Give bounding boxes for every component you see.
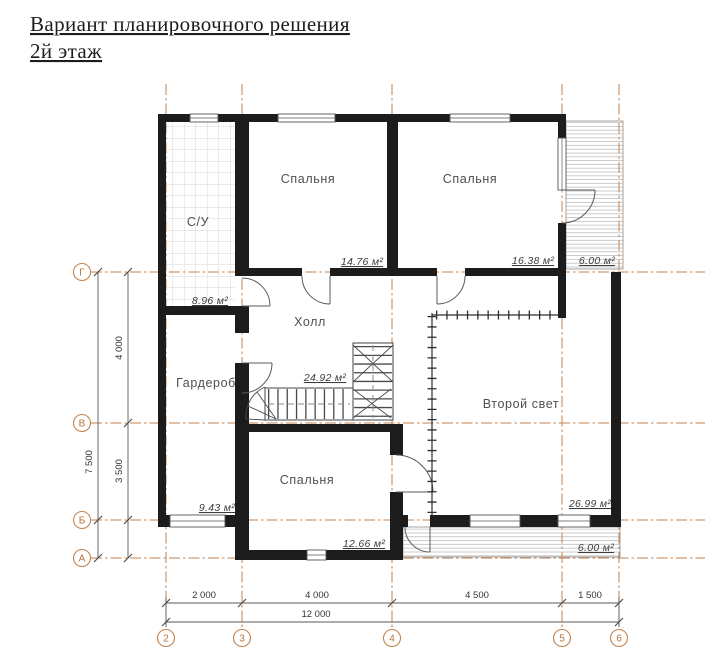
- window: [558, 138, 566, 190]
- door-bedroom-top-right: [437, 276, 465, 304]
- dim-bottom-2000: 2 000: [192, 590, 216, 601]
- window: [307, 550, 326, 560]
- area-label-balcony-top: 6.00 м²: [579, 255, 615, 267]
- dim-left-3500: 3 500: [114, 459, 125, 483]
- dim-bottom-12000: 12 000: [301, 609, 330, 620]
- axis-label-a: А: [79, 554, 86, 565]
- room-label-second-light: Второй свет: [483, 397, 559, 411]
- area-label-wardrobe: 9.43 м²: [199, 502, 235, 514]
- window: [190, 114, 218, 122]
- window: [558, 515, 590, 527]
- area-label-bedroom-bottom: 12.66 м²: [343, 538, 385, 550]
- dim-bottom-4000: 4 000: [305, 590, 329, 601]
- window: [450, 114, 510, 122]
- axis-label-4: 4: [389, 634, 395, 645]
- axis-bubble-2: 2: [158, 630, 175, 647]
- doors: [242, 190, 595, 552]
- axis-bubble-4: 4: [384, 630, 401, 647]
- axis-label-b: Б: [79, 516, 86, 527]
- page-title: Вариант планировочного решения: [30, 12, 350, 36]
- axis-bubble-v: В: [74, 415, 91, 432]
- room-bedroom-top-right: Спальня 16.38 м²: [443, 172, 555, 267]
- axis-label-v: В: [79, 419, 86, 430]
- dimensions-left: 4 000 3 500 7 500: [84, 268, 132, 562]
- area-label-bedroom-top-left: 14.76 м²: [341, 256, 383, 268]
- page-subtitle: 2й этаж: [30, 39, 102, 63]
- drawing-sheet: Вариант планировочного решения 2й этаж: [0, 0, 719, 669]
- axis-bubble-g: Г: [74, 264, 91, 281]
- room-wardrobe: Гардероб 9.43 м²: [176, 376, 236, 514]
- area-label-hall: 24.92 м²: [303, 372, 346, 384]
- floor-plan-canvas: Вариант планировочного решения 2й этаж: [0, 0, 719, 669]
- dim-bottom-4500: 4 500: [465, 590, 489, 601]
- door-bedroom-bottom: [396, 455, 433, 492]
- axis-bubble-6: 6: [611, 630, 628, 647]
- axis-label-2: 2: [163, 634, 169, 645]
- dim-left-7500: 7 500: [84, 450, 95, 474]
- room-label-wardrobe: Гардероб: [176, 376, 236, 390]
- area-label-second-light: 26.99 м²: [568, 498, 611, 510]
- door-su: [242, 278, 270, 306]
- axis-bubble-3: 3: [234, 630, 251, 647]
- room-bedroom-top-left: Спальня 14.76 м²: [281, 172, 384, 268]
- area-label-balcony-bottom: 6.00 м²: [578, 542, 614, 554]
- su-tile-floor: [166, 122, 235, 306]
- room-label-su: С/У: [187, 215, 209, 229]
- axis-label-g: Г: [79, 268, 85, 279]
- area-label-bedroom-top-right: 16.38 м²: [512, 255, 554, 267]
- room-label-bedroom-top-right: Спальня: [443, 172, 497, 186]
- axis-label-6: 6: [616, 634, 622, 645]
- axis-bubble-a: А: [74, 550, 91, 567]
- second-light-railing: [432, 313, 558, 515]
- room-hall: Холл 24.92 м²: [294, 315, 346, 384]
- axis-bubble-b: Б: [74, 512, 91, 529]
- room-label-hall: Холл: [294, 315, 326, 329]
- area-label-su: 8.96 м²: [192, 295, 228, 307]
- room-label-bedroom-top-left: Спальня: [281, 172, 335, 186]
- window: [470, 515, 520, 527]
- room-second-light: Второй свет 26.99 м²: [483, 397, 612, 510]
- window: [278, 114, 335, 122]
- axis-bubble-5: 5: [554, 630, 571, 647]
- title-block: Вариант планировочного решения 2й этаж: [30, 12, 350, 63]
- room-bedroom-bottom: Спальня 12.66 м²: [280, 473, 386, 550]
- axis-label-3: 3: [239, 634, 245, 645]
- axis-bubbles-left: Г В Б А: [74, 264, 91, 567]
- door-bedroom-top-left: [302, 276, 330, 304]
- window: [170, 515, 225, 527]
- room-label-bedroom-bottom: Спальня: [280, 473, 334, 487]
- axis-label-5: 5: [559, 634, 565, 645]
- axis-bubbles-bottom: 2 3 4 5 6: [158, 630, 628, 647]
- dim-bottom-1500: 1 500: [578, 590, 602, 601]
- dim-left-4000: 4 000: [114, 336, 125, 360]
